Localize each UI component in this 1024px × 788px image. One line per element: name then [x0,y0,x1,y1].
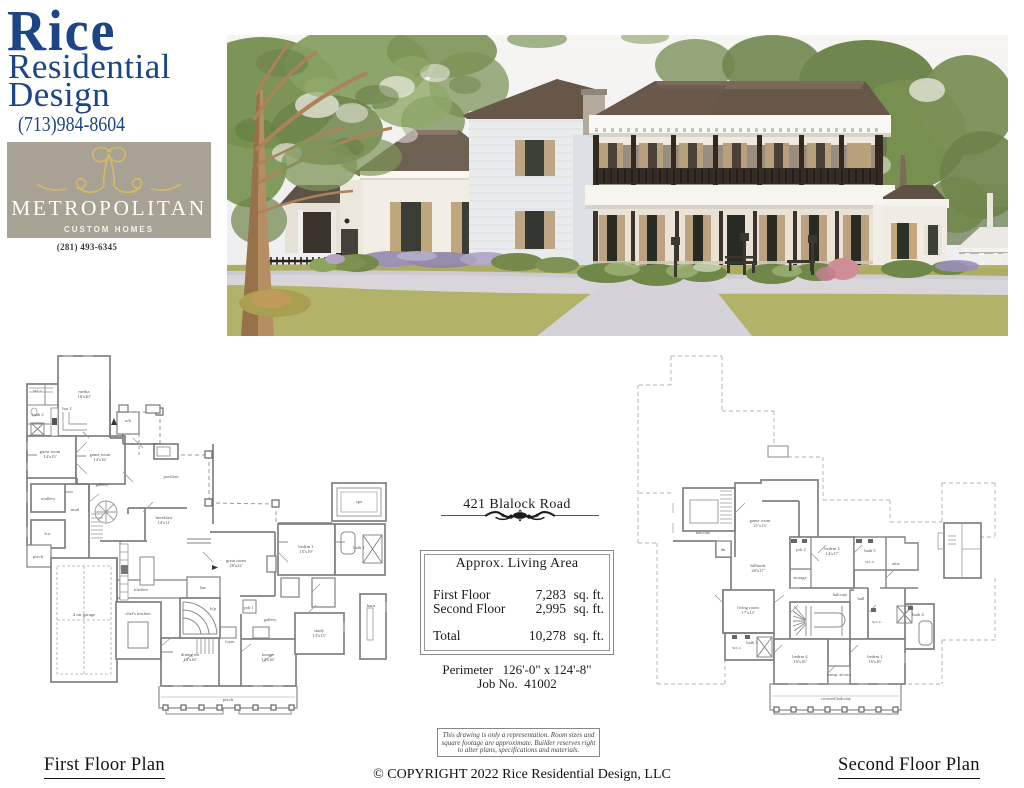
svg-text:dn: dn [721,547,726,552]
svg-text:porch: porch [33,554,44,559]
svg-text:bath 5: bath 5 [864,548,876,553]
svg-text:u/b: u/b [125,418,132,423]
svg-text:h.o.: h.o. [45,531,52,536]
svg-text:foyer: foyer [225,639,235,644]
svg-text:pdr 1: pdr 1 [244,605,254,610]
svg-text:b/p: b/p [210,606,217,611]
svg-text:scullery: scullery [41,496,56,501]
svg-text:w.i.c.: w.i.c. [872,619,882,624]
svg-text:storage: storage [793,575,806,580]
svg-text:bath 3: bath 3 [746,640,758,645]
svg-text:mud: mud [71,507,80,512]
svg-text:hall: hall [858,596,866,601]
svg-text:4 car garage: 4 car garage [73,612,95,617]
svg-text:barn: barn [367,603,376,608]
svg-text:gallery: gallery [264,617,277,622]
svg-text:16'x16': 16'x16' [868,659,881,664]
svg-text:porch: porch [223,697,234,702]
svg-text:13'x16': 13'x16' [183,657,196,662]
svg-text:14'x15': 14'x15' [43,454,56,459]
svg-text:chef's kitchen: chef's kitchen [125,611,151,616]
svg-text:bath 2: bath 2 [32,412,44,417]
svg-text:comp. alcove: comp. alcove [827,672,852,677]
svg-text:21'x13': 21'x13' [753,523,766,528]
svg-text:balcony: balcony [696,530,711,535]
svg-text:pavilion: pavilion [163,474,179,479]
svg-text:spa: spa [356,499,362,504]
svg-text:14'x16': 14'x16' [261,657,274,662]
svg-text:w.i.c.: w.i.c. [732,645,742,650]
svg-text:20'x17': 20'x17' [751,568,764,573]
svg-text:attic: attic [892,561,900,566]
svg-text:13'x13': 13'x13' [312,633,325,638]
svg-text:pdr 2: pdr 2 [796,547,806,552]
svg-text:bar 2: bar 2 [62,406,72,411]
svg-text:16'x16': 16'x16' [793,659,806,664]
svg-text:bar: bar [200,585,206,590]
svg-text:16'x20': 16'x20' [77,394,90,399]
svg-text:15'x19': 15'x19' [299,549,312,554]
svg-text:kitchen: kitchen [134,587,148,592]
svg-text:w.i.c.: w.i.c. [865,559,875,564]
svg-text:17'x13': 17'x13' [741,610,754,615]
svg-text:14'x17': 14'x17' [825,551,838,556]
svg-text:w.i.c.: w.i.c. [33,388,43,393]
svg-text:14'x16': 14'x16' [93,457,106,462]
svg-text:balcony: balcony [833,592,848,597]
svg-text:20'x22': 20'x22' [229,563,242,568]
svg-text:bath 1: bath 1 [353,545,365,550]
svg-text:14'x11': 14'x11' [158,520,171,525]
svg-text:bath 4: bath 4 [912,612,924,617]
svg-text:gallery: gallery [96,482,109,487]
svg-text:covered balcony: covered balcony [821,696,852,701]
